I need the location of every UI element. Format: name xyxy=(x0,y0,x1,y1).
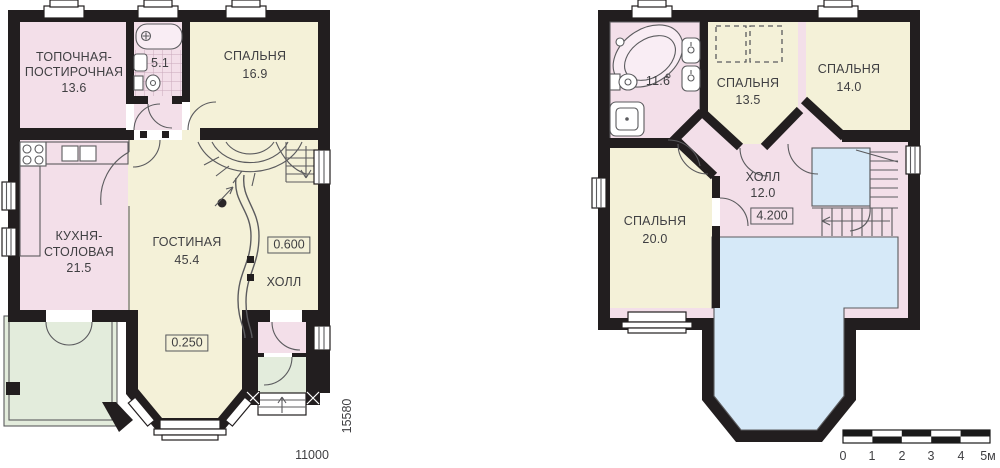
dimension-depth: 15580 xyxy=(340,399,354,434)
room-label-kitchen-line2: СТОЛОВАЯ xyxy=(44,246,114,260)
room-area-living: 45.4 xyxy=(174,254,199,268)
room-label-bedroom1: СПАЛЬНЯ xyxy=(224,50,286,64)
scale-tick-0: 0 xyxy=(840,449,847,463)
room-label-kitchen-line1: КУХНЯ- xyxy=(55,230,102,244)
scale-tick-3: 3 xyxy=(928,449,935,463)
room-area-bathroom2: 11.6 xyxy=(646,75,670,89)
window-icon xyxy=(818,0,858,18)
scale-tick-2: 2 xyxy=(899,449,906,463)
room-area-bedroom200: 20.0 xyxy=(642,233,667,247)
window-icon xyxy=(154,420,226,440)
level-mark-living: 0.250 xyxy=(165,335,208,352)
kitchen-sink-icon xyxy=(62,146,78,161)
floor-plan-canvas: ТОПОЧНАЯ- ПОСТИРОЧНАЯ 13.6 5.1 СПАЛЬНЯ 1… xyxy=(0,0,1000,468)
window-icon xyxy=(314,150,330,184)
room-area-bathroom1: 5.1 xyxy=(151,57,169,71)
sink-icon xyxy=(134,54,147,71)
window-icon xyxy=(632,0,672,18)
room-area-kitchen: 21.5 xyxy=(66,262,91,276)
entrance-steps xyxy=(246,391,320,415)
room-label-hall2: ХОЛЛ xyxy=(746,171,781,185)
bay-window-floor xyxy=(138,310,242,418)
vestibule-floor xyxy=(258,357,306,393)
window-icon xyxy=(2,228,16,256)
window-icon xyxy=(2,182,16,210)
room-label-boiler-line2: ПОСТИРОЧНАЯ xyxy=(25,66,123,80)
sink-icon xyxy=(682,38,700,63)
level-mark-hall2: 4.200 xyxy=(750,208,793,225)
window-icon xyxy=(44,0,84,18)
sink-icon xyxy=(682,66,700,91)
level-mark-hall1: 0.600 xyxy=(267,237,310,254)
room-label-bedroom200: СПАЛЬНЯ xyxy=(624,215,686,229)
stair-pole xyxy=(218,199,227,208)
scale-tick-1: 1 xyxy=(869,449,876,463)
window-icon xyxy=(906,146,920,174)
void-opening xyxy=(712,237,898,430)
window-icon xyxy=(226,0,266,18)
room-label-living: ГОСТИНАЯ xyxy=(152,236,221,250)
stairwell-void xyxy=(812,148,870,206)
toilet-icon xyxy=(134,76,143,90)
window-icon xyxy=(622,312,692,333)
room-label-bedroom135: СПАЛЬНЯ xyxy=(717,77,779,91)
room-area-bedroom140: 14.0 xyxy=(836,81,861,95)
scale-tick-5: 5м xyxy=(980,449,996,463)
scale-bar xyxy=(843,430,990,443)
room-area-bedroom1: 16.9 xyxy=(242,68,267,82)
room-area-boiler: 13.6 xyxy=(61,82,86,96)
terrace xyxy=(4,316,133,432)
room-label-hall1: ХОЛЛ xyxy=(267,276,302,290)
room-area-bedroom135: 13.5 xyxy=(735,94,760,108)
dimension-width: 11000 xyxy=(295,448,329,462)
window-icon xyxy=(138,0,178,18)
room-label-boiler-line1: ТОПОЧНАЯ- xyxy=(36,51,112,65)
tambour-floor xyxy=(258,322,306,353)
room-area-hall2: 12.0 xyxy=(750,187,775,201)
window-icon xyxy=(592,178,606,208)
scale-tick-4: 4 xyxy=(958,449,965,463)
room-label-bedroom140: СПАЛЬНЯ xyxy=(818,63,880,77)
window-icon xyxy=(314,326,330,350)
